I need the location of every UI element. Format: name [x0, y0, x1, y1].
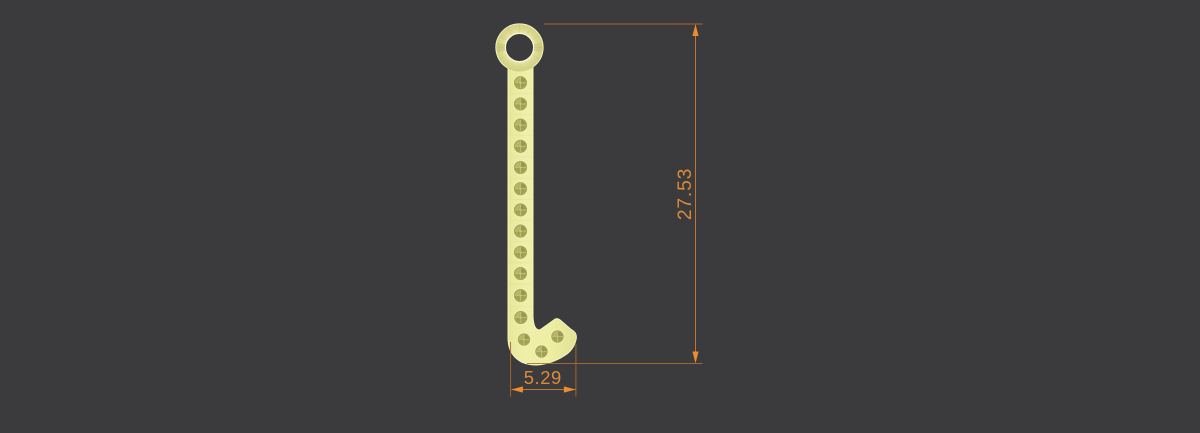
svg-text:27.53: 27.53 [675, 168, 696, 220]
svg-text:5.29: 5.29 [524, 367, 562, 388]
